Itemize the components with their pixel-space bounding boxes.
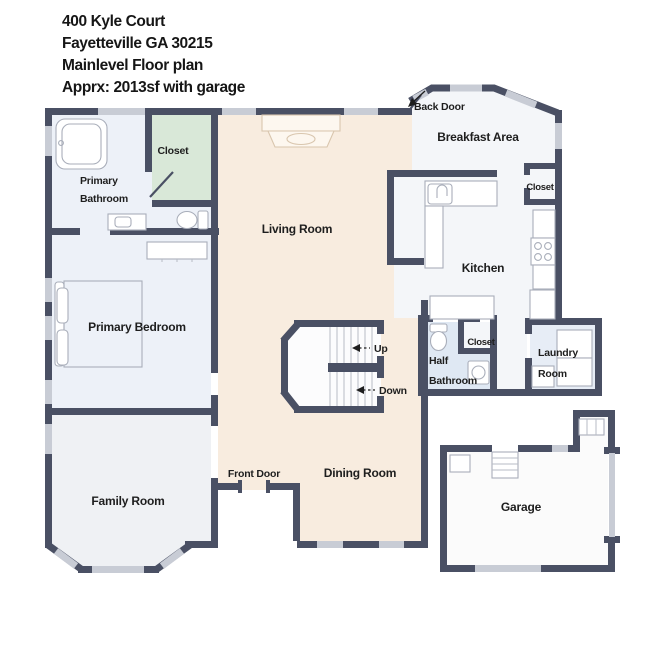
dresser	[147, 242, 207, 262]
city-line: Fayetteville GA 30215	[62, 35, 213, 52]
label-closet-kitchen: Closet	[526, 182, 554, 193]
label-primary-bathroom-1: Primary	[80, 175, 118, 187]
label-primary-bedroom: Primary Bedroom	[88, 320, 186, 334]
label-closet-hall: Closet	[467, 337, 495, 348]
label-back-door: Back Door	[414, 101, 465, 113]
garage-equipment	[450, 455, 470, 472]
label-stairs-up: Up	[374, 343, 388, 355]
label-family-room: Family Room	[91, 494, 164, 508]
stove	[531, 210, 555, 289]
label-half-bathroom-1: Half	[429, 355, 449, 367]
room-bathroom-closet	[152, 115, 211, 202]
label-laundry-2: Room	[538, 368, 567, 380]
toilet	[177, 211, 208, 229]
garage-steps	[492, 452, 518, 478]
floor-plan-page: 400 Kyle Court Fayetteville GA 30215 Mai…	[0, 0, 650, 655]
bathtub	[56, 119, 107, 169]
level-line: Mainlevel Floor plan	[62, 57, 203, 74]
refrigerator	[530, 290, 555, 319]
label-front-door: Front Door	[228, 468, 280, 480]
label-primary-bathroom-2: Bathroom	[80, 193, 128, 205]
fireplace	[262, 115, 340, 147]
floor-plan: 400 Kyle Court Fayetteville GA 30215 Mai…	[0, 0, 650, 655]
water-heater	[579, 419, 604, 435]
half-bath-toilet	[430, 324, 447, 351]
label-stairs-down: Down	[379, 385, 407, 397]
label-closet-bathroom: Closet	[158, 145, 190, 157]
label-living-room: Living Room	[262, 222, 332, 236]
plan-header: 400 Kyle Court Fayetteville GA 30215 Mai…	[62, 13, 246, 96]
address-line: 400 Kyle Court	[62, 13, 165, 30]
label-garage: Garage	[501, 500, 542, 514]
label-laundry-1: Laundry	[538, 347, 578, 359]
label-breakfast-area: Breakfast Area	[437, 130, 519, 144]
hall-to-laundry	[497, 318, 527, 389]
label-dining-room: Dining Room	[324, 466, 396, 480]
label-kitchen: Kitchen	[462, 261, 505, 275]
label-half-bathroom-2: Bathroom	[429, 375, 477, 387]
sqft-line: Apprx: 2013sf with garage	[62, 79, 246, 96]
bathroom-sink	[108, 214, 146, 230]
